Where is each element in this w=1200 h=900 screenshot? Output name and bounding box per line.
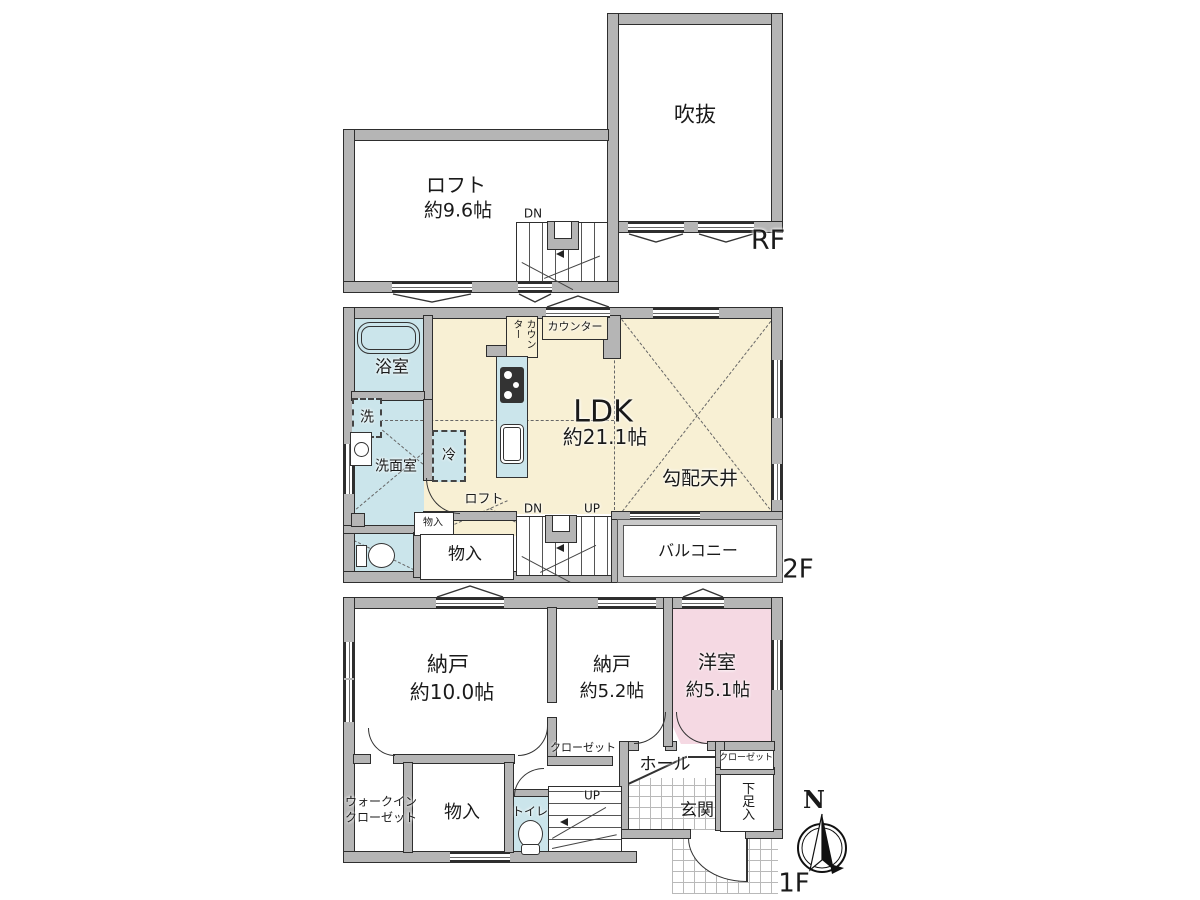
bay-window-icon [436, 585, 504, 598]
window [682, 598, 724, 608]
balcony-label: バルコニー [658, 542, 738, 560]
small-closet-label: 物入 [423, 518, 443, 529]
floor-plan: 吹抜 ロフト 約9.6帖 DN RF [0, 0, 1200, 900]
washbasin-icon [350, 432, 372, 466]
room-label-void: 吹抜 [674, 103, 716, 126]
sloped-ceiling-label: 勾配天井 [662, 469, 738, 490]
bath-label: 浴室 [375, 359, 409, 378]
wall [344, 526, 420, 533]
stair-arrow-icon [556, 544, 564, 552]
storage1-label: 納戸 [427, 653, 469, 676]
stairs-up-label: UP [584, 502, 600, 515]
compass-icon [790, 808, 854, 878]
room-label-loft: ロフト [426, 174, 486, 196]
window [653, 308, 719, 318]
window [598, 598, 656, 608]
door-arc [368, 728, 395, 756]
wall [548, 608, 556, 702]
storage-label: 物入 [444, 803, 480, 823]
stair-center-notch [553, 516, 569, 531]
window [450, 852, 510, 862]
awning-window-icon [628, 233, 684, 243]
counter-label: カウンター [548, 321, 603, 333]
wall [772, 14, 782, 232]
wall [354, 755, 370, 763]
loft-ref-label: ロフト [464, 493, 503, 507]
ldk-size-label: 約21.1帖 [563, 426, 648, 448]
wall [608, 14, 618, 292]
toilet-tank-icon [521, 844, 540, 855]
wall [608, 14, 782, 24]
window [518, 282, 552, 292]
awning-window-icon [392, 293, 472, 303]
stairs-dn-label: DN [524, 207, 542, 220]
washer-label: 洗 [360, 410, 374, 425]
stair-arrow-icon [556, 250, 564, 258]
washroom-label: 洗面室 [375, 459, 417, 474]
toilet-icon [368, 543, 395, 568]
storage2-label: 納戸 [593, 655, 631, 676]
wall [424, 400, 432, 480]
bay-window-icon [682, 588, 724, 598]
storage1-size-label: 約10.0帖 [410, 681, 495, 703]
counter-vertical-label: カウンター [510, 319, 536, 357]
shoe-box-label: 下足入 [739, 782, 753, 821]
sink-icon [500, 424, 524, 464]
wall [344, 130, 608, 140]
awning-window-icon [698, 233, 754, 243]
wall [616, 830, 690, 838]
wall [664, 598, 672, 746]
wall [394, 755, 514, 763]
wall [424, 316, 432, 400]
window [698, 222, 754, 232]
stair-center-notch [555, 222, 571, 238]
wall [344, 282, 618, 292]
floor-label-rf: RF [751, 226, 785, 256]
stove-icon [499, 366, 525, 404]
wall [344, 130, 354, 292]
floor-label-2f: 2F [782, 556, 814, 585]
hall-edge-line [688, 756, 718, 758]
western-room-label: 洋室 [698, 653, 736, 674]
bathtub-icon [357, 322, 420, 354]
window [772, 360, 782, 418]
storage-label: 物入 [448, 546, 482, 565]
closet-label: クローゼット [550, 742, 616, 754]
stair-arrow-icon [560, 818, 568, 826]
window [436, 598, 504, 608]
window [344, 642, 354, 678]
toilet-tank-icon [356, 545, 367, 567]
wall [548, 757, 612, 765]
wic-label-line2: クローゼット [345, 811, 417, 824]
sliding-door-window [630, 512, 700, 520]
window [772, 464, 782, 500]
entrance-label: 玄関 [680, 802, 714, 821]
toilet-label: トイレ [512, 805, 548, 818]
closet-label: クローゼット [719, 754, 773, 764]
window [628, 222, 684, 232]
fridge-label: 冷 [442, 448, 456, 463]
stairs-up-label: UP [584, 789, 600, 802]
hall-label: ホール [640, 756, 691, 775]
window [392, 282, 472, 292]
pillar [352, 514, 364, 526]
door-arc [518, 726, 548, 756]
door-leaf [746, 838, 748, 882]
room-size-loft: 約9.6帖 [424, 201, 492, 222]
counter-box: カウンター [506, 316, 538, 358]
bay-window-icon [546, 295, 610, 308]
window [344, 680, 354, 722]
western-room-size-label: 約5.1帖 [686, 681, 751, 701]
storage2-size-label: 約5.2帖 [580, 682, 645, 702]
wic-label-line1: ウォークイン [345, 795, 417, 808]
stairs-dn-label: DN [524, 502, 542, 515]
ldk-label: LDK [573, 396, 633, 429]
window [772, 640, 782, 690]
door-arc [514, 768, 544, 796]
